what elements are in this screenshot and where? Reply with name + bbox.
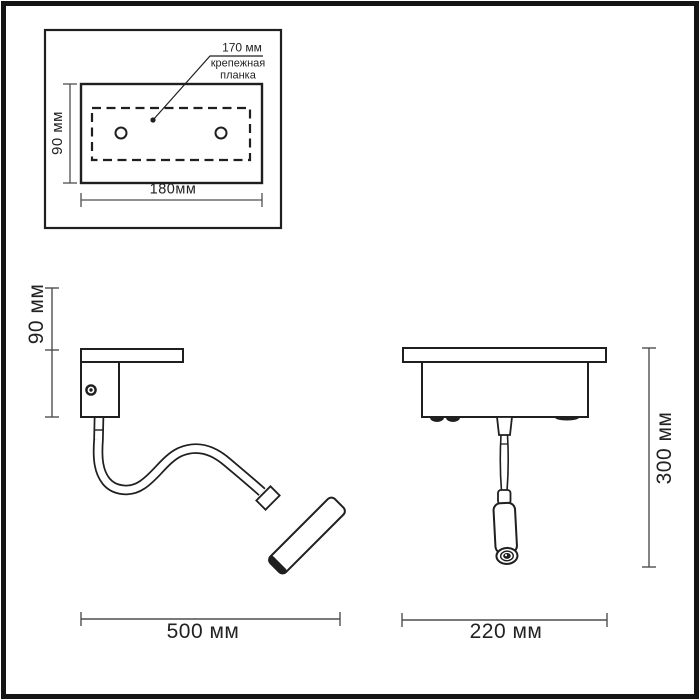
front-view bbox=[402, 348, 656, 627]
wall-plate-side bbox=[81, 349, 183, 362]
label-plate-width: 180мм bbox=[150, 182, 197, 197]
label-lamp-width: 220 мм bbox=[470, 621, 543, 643]
label-mount-height: 90 мм bbox=[26, 284, 48, 345]
screw-bump-left-1 bbox=[430, 418, 444, 423]
label-lamp-length: 500 мм bbox=[167, 621, 240, 643]
mounting-hole-left bbox=[116, 128, 127, 139]
wall-plate-front bbox=[403, 348, 606, 362]
lamp-head-side bbox=[267, 496, 347, 576]
label-plate-height: 90 мм bbox=[50, 111, 66, 155]
lamp-dimension-diagram: 170 мм крепежная планка 90 мм 180мм 90 м… bbox=[0, 0, 700, 700]
label-mounting-bracket: крепежная планка bbox=[211, 58, 266, 81]
stem-socket-front bbox=[497, 417, 512, 435]
label-hole-spacing: 170 мм bbox=[222, 42, 262, 55]
screw-bump-right bbox=[555, 418, 579, 421]
side-view-dimension-lines bbox=[45, 288, 340, 626]
screw-bump-left-2 bbox=[446, 418, 460, 423]
gooseneck-arm-inner bbox=[98, 417, 262, 492]
technical-drawing-canvas bbox=[0, 0, 700, 700]
lamp-head-front bbox=[493, 502, 518, 564]
mounting-hole-right bbox=[216, 128, 227, 139]
power-button-dot bbox=[89, 388, 92, 391]
label-lamp-height: 300 мм bbox=[654, 412, 676, 485]
leader-dot bbox=[150, 117, 155, 122]
side-view bbox=[45, 288, 347, 626]
body-front bbox=[422, 362, 588, 417]
